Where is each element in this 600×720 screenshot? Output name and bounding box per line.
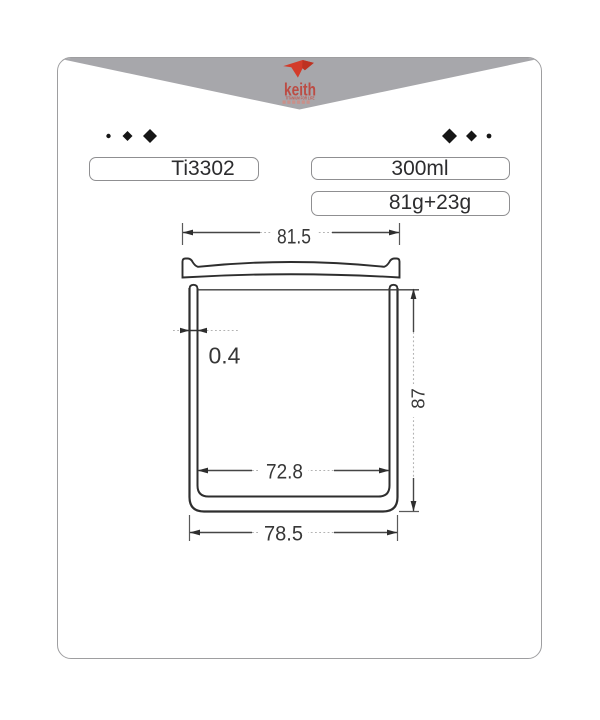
svg-text:81.5: 81.5 — [277, 225, 311, 249]
svg-text:72.8: 72.8 — [266, 460, 303, 484]
svg-text:78.5: 78.5 — [264, 522, 303, 546]
svg-text:87: 87 — [408, 388, 429, 409]
svg-text:0.4: 0.4 — [209, 343, 241, 369]
